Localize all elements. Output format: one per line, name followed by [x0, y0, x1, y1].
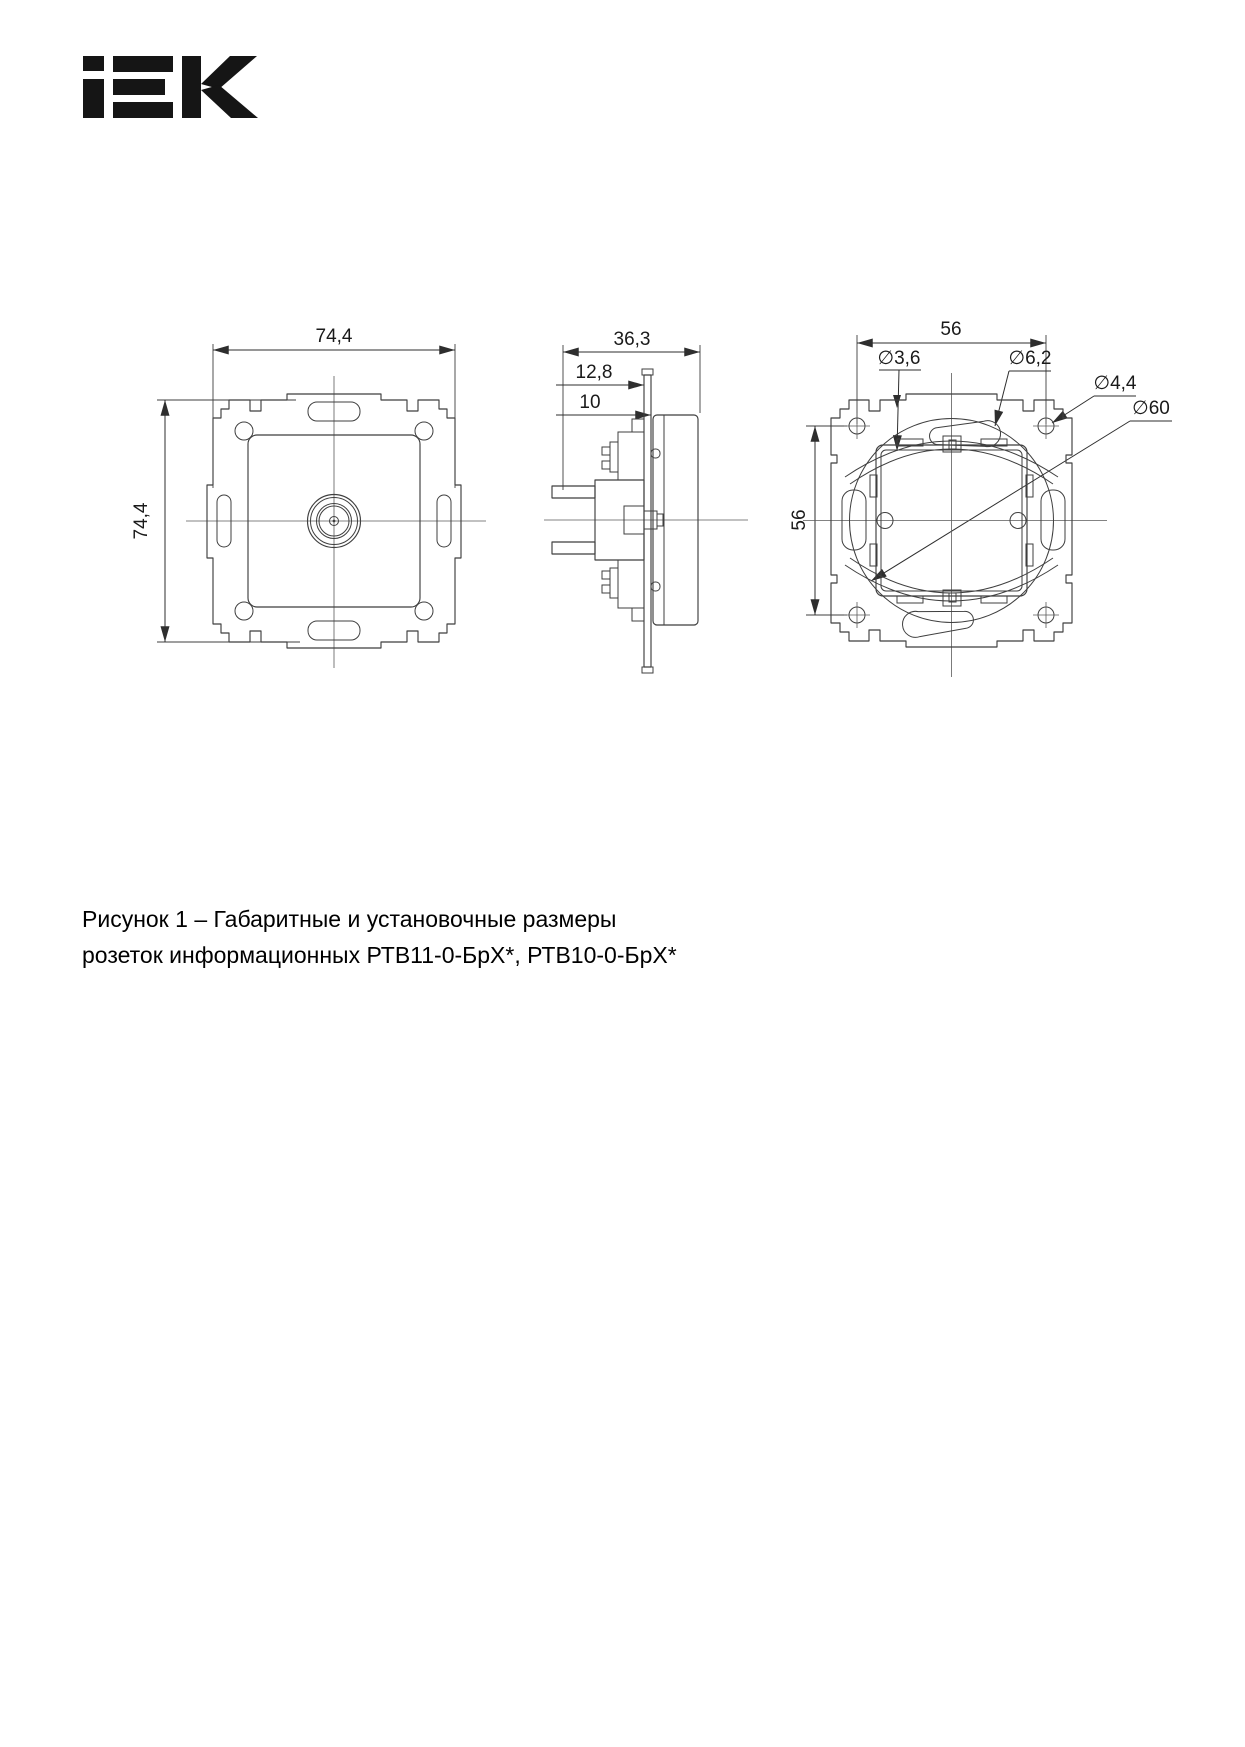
rear-dia-screw-hole-label: ∅4,4 [1094, 373, 1137, 394]
front-socket-outline [186, 376, 486, 668]
iek-logo-letters [83, 56, 258, 118]
rear-view-drawing: 56 56 ∅3,6 ∅6,2 ∅4,4 ∅60 [785, 275, 1185, 695]
front-height-label: 74,4 [131, 502, 152, 539]
side-depth-front-label: 10 [579, 392, 600, 413]
caption-line-1: Рисунок 1 – Габаритные и установочные ра… [82, 901, 722, 937]
rear-dia-slot-leader: ∅6,2 [995, 348, 1051, 426]
rear-dia-slot-label: ∅6,2 [1009, 348, 1052, 369]
rear-spacing-h-label: 56 [940, 319, 961, 340]
front-view-drawing: 74,4 74,4 [90, 300, 530, 700]
side-view-drawing: 36,3 12,8 10 [540, 300, 755, 700]
side-depth-dimension-front: 10 [556, 392, 651, 415]
rear-socket-outline [803, 373, 1107, 677]
side-depth-mid-label: 12,8 [576, 362, 613, 383]
rear-spacing-v-label: 56 [789, 509, 810, 530]
side-depth-dimension-mid: 12,8 [556, 362, 644, 385]
side-depth-total-label: 36,3 [614, 329, 651, 350]
figure-caption: Рисунок 1 – Габаритные и установочные ра… [82, 901, 722, 973]
caption-line-2: розеток информационных РТВ11-0-БрХ*, РТВ… [82, 937, 722, 973]
rear-dia-small-hole-label: ∅3,6 [878, 348, 921, 369]
rear-dia-screw-hole-leader: ∅4,4 [1052, 373, 1137, 423]
document-page: IEK 74,4 74,4 [0, 0, 1245, 1747]
rear-dia-ring-label: ∅60 [1132, 398, 1170, 419]
iek-logo: IEK [83, 56, 233, 118]
front-width-label: 74,4 [316, 326, 353, 347]
